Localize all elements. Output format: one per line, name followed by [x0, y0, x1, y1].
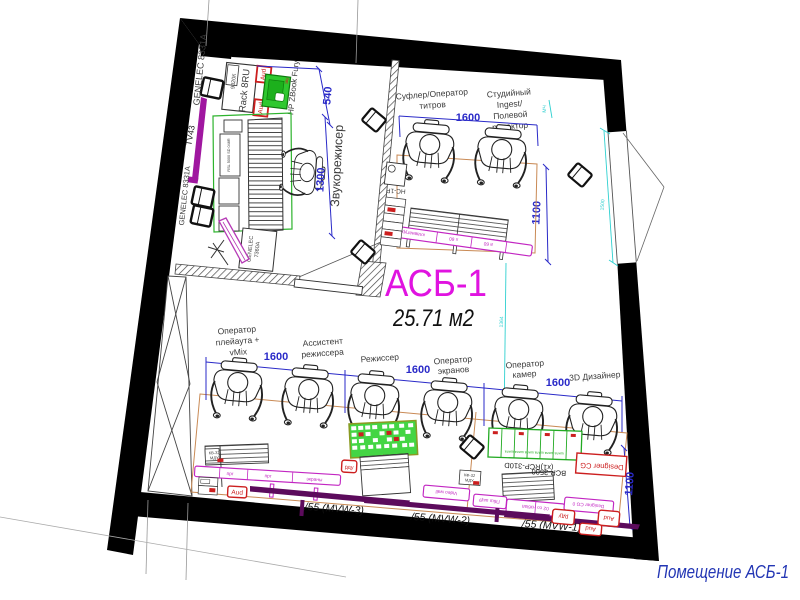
svg-text:1500: 1500 [600, 199, 607, 211]
svg-text:Помещение АСБ-1: Помещение АСБ-1 [657, 562, 789, 582]
svg-text:экраны: экраны [306, 477, 323, 483]
svg-text:титров: титров [419, 99, 447, 111]
svg-text:25.71 м2: 25.71 м2 [392, 305, 474, 332]
svg-text:vMix: vMix [229, 346, 248, 357]
svg-text:1600: 1600 [456, 112, 480, 124]
svg-text:1600: 1600 [406, 364, 430, 376]
svg-text:1600: 1600 [546, 377, 570, 389]
svg-text:1364: 1364 [499, 316, 505, 328]
svg-text:рду: рду [344, 465, 353, 471]
svg-text:1100: 1100 [530, 201, 543, 225]
svg-text:АСБ-1: АСБ-1 [385, 263, 487, 305]
svg-text:Aud: Aud [231, 489, 243, 497]
svg-text:камер: камер [512, 368, 537, 380]
svg-text:НС-1Р: НС-1Р [386, 186, 406, 194]
svg-text:прг: прг [264, 474, 272, 479]
svg-text:540: 540 [321, 86, 335, 105]
svg-text:RSL 5000 SD 048R: RSL 5000 SD 048R [227, 138, 231, 171]
svg-text:1600: 1600 [264, 351, 288, 363]
svg-text:МЧ: МЧ [542, 105, 549, 113]
svg-text:прг: прг [226, 472, 234, 477]
svg-text:1300: 1300 [314, 167, 327, 192]
svg-text:МДУ: МДУ [465, 477, 474, 483]
svg-text:BCP-3500: BCP-3500 [531, 467, 566, 478]
svg-text:Ingest/: Ingest/ [496, 98, 523, 110]
